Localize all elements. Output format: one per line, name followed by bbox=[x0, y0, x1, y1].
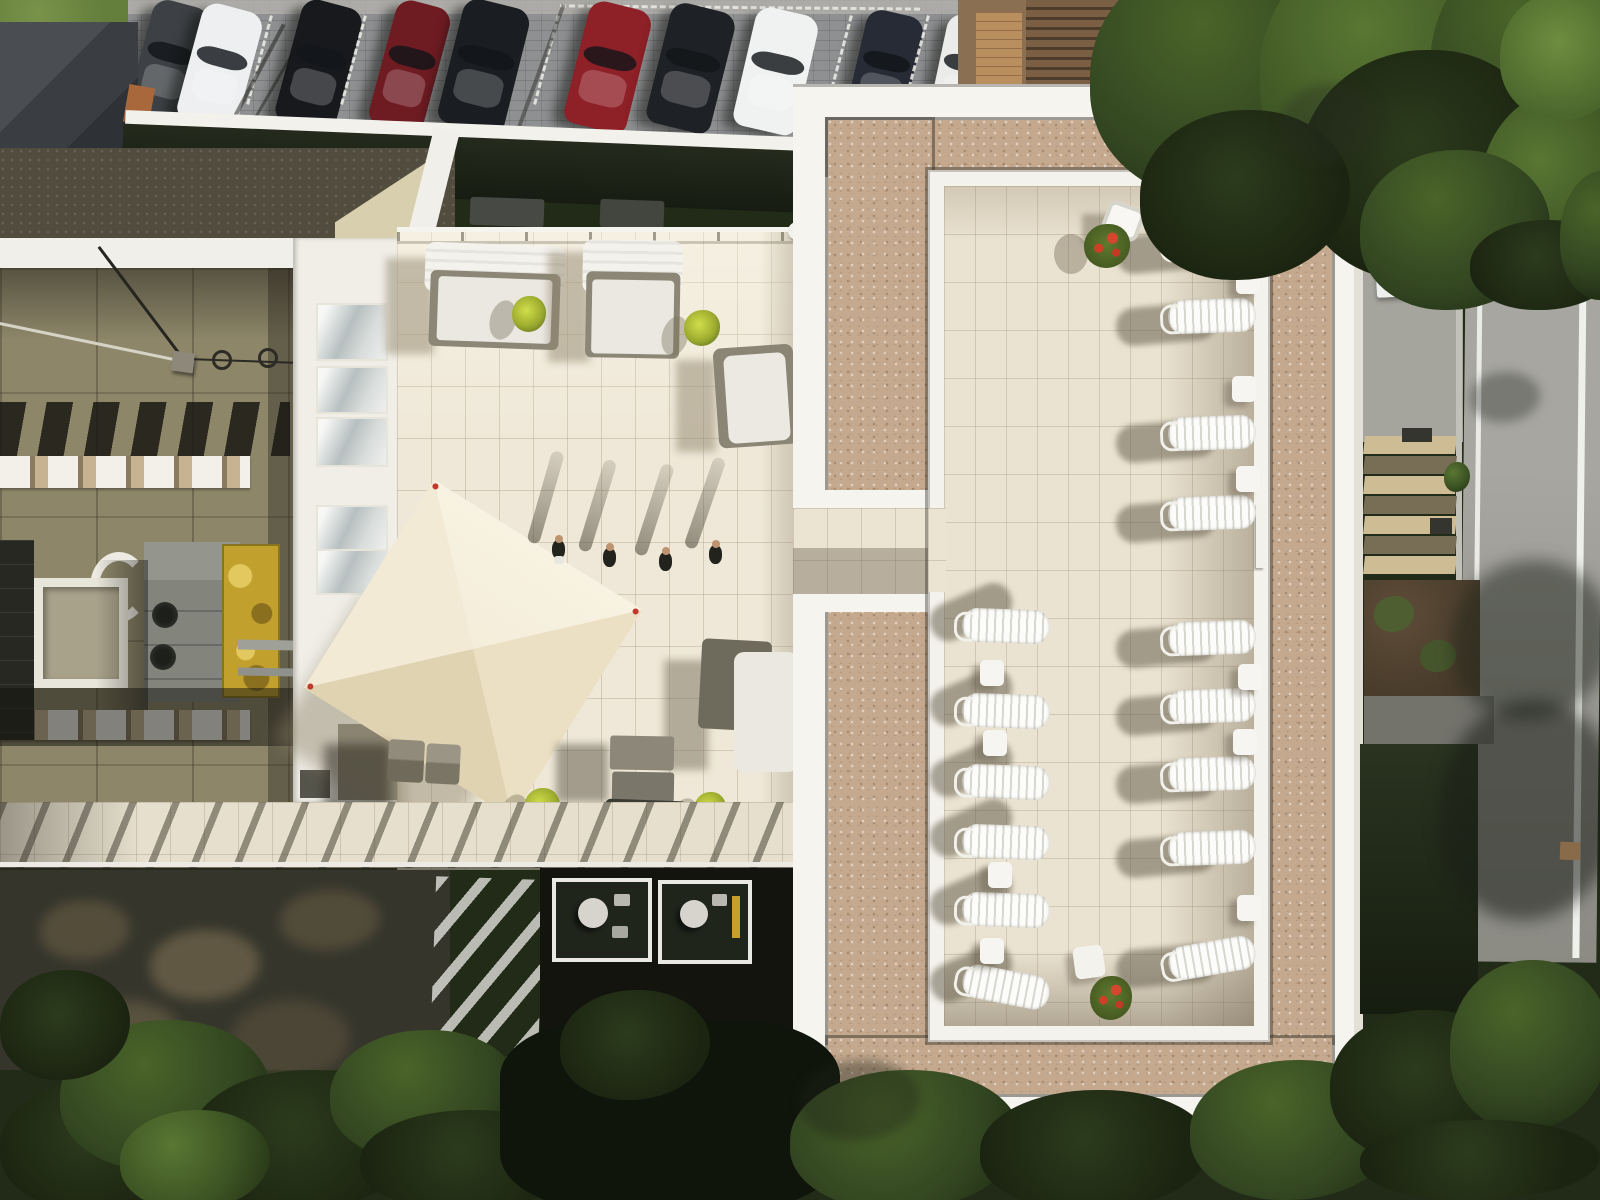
roof-ring-2 bbox=[258, 348, 278, 368]
small-dark-roof bbox=[0, 22, 138, 160]
aerial-photo-scene bbox=[0, 0, 1600, 1200]
tree-canopy bbox=[1360, 1120, 1600, 1200]
tree-canopy bbox=[1450, 960, 1600, 1130]
bar-boxes-shadow bbox=[556, 744, 608, 802]
cube-seats-shadow bbox=[324, 744, 390, 810]
balcony-1 bbox=[552, 878, 652, 962]
cube-seat-2 bbox=[425, 743, 461, 785]
wall-passage-opening bbox=[928, 508, 946, 592]
white-slotted-ledge-upper bbox=[0, 456, 250, 488]
balcony-2 bbox=[658, 880, 752, 964]
hvac-fan-1 bbox=[152, 602, 178, 628]
walkway-cap-lower bbox=[824, 592, 936, 612]
stair-step bbox=[1363, 476, 1457, 494]
gravel-band-left-upper bbox=[828, 120, 932, 492]
tree-canopy bbox=[120, 1110, 270, 1200]
cube-seat-1 bbox=[387, 739, 425, 783]
gravel-band-left-lower bbox=[828, 610, 932, 1042]
hvac-pipe-2 bbox=[238, 668, 294, 677]
manhole-cover bbox=[1560, 842, 1581, 861]
balcony-yellow-strip bbox=[732, 896, 740, 938]
shaded-patio-table-1 bbox=[470, 197, 545, 228]
railing-shadow-zigzag bbox=[0, 402, 290, 456]
planter-shadow bbox=[1054, 234, 1088, 274]
stair-step bbox=[1363, 536, 1457, 554]
chaise-cushion bbox=[723, 352, 791, 444]
balcony-table bbox=[680, 900, 708, 928]
chaise-2 bbox=[700, 640, 804, 778]
tree-shadow-on-road bbox=[1452, 560, 1600, 720]
bar-box-1 bbox=[610, 735, 675, 770]
bar-box-2 bbox=[612, 771, 675, 802]
wall-ladder bbox=[1256, 504, 1265, 568]
outdoor-stairs bbox=[1364, 436, 1456, 578]
courtyard-white-table bbox=[1072, 944, 1106, 980]
parked-car-black bbox=[644, 0, 738, 136]
balcony-table bbox=[578, 898, 608, 928]
shaded-patio-table-2 bbox=[600, 199, 665, 229]
balcony-chair bbox=[612, 926, 628, 938]
roof-ring-1 bbox=[212, 350, 232, 370]
left-building-parapet bbox=[0, 238, 305, 268]
tree-canopy bbox=[980, 1090, 1210, 1200]
balcony-chair bbox=[712, 894, 727, 906]
balcony-chair bbox=[614, 894, 630, 906]
stair-step bbox=[1363, 456, 1457, 474]
walkway-left-shade bbox=[0, 802, 140, 868]
parked-car-red bbox=[562, 0, 655, 136]
dark-planter-2 bbox=[1430, 518, 1452, 534]
chaise-cushion bbox=[734, 652, 798, 772]
wood-deck bbox=[976, 12, 1022, 88]
stair-step bbox=[1363, 496, 1457, 514]
cable-anchor-block bbox=[171, 351, 196, 374]
walkway-cap-upper bbox=[824, 490, 936, 510]
hvac-fan-2 bbox=[150, 644, 176, 670]
tree-canopy-highlight bbox=[1500, 0, 1600, 120]
courtyard-right-shadow bbox=[1160, 186, 1254, 1026]
left-roof-lower-shadow bbox=[0, 688, 295, 746]
hvac-pipe-1 bbox=[238, 639, 296, 650]
connecting-walkway-shadow bbox=[793, 548, 936, 594]
dark-planter-1 bbox=[1402, 428, 1432, 442]
stair-step bbox=[1363, 556, 1457, 574]
left-roof-corner-shadow bbox=[0, 268, 295, 340]
